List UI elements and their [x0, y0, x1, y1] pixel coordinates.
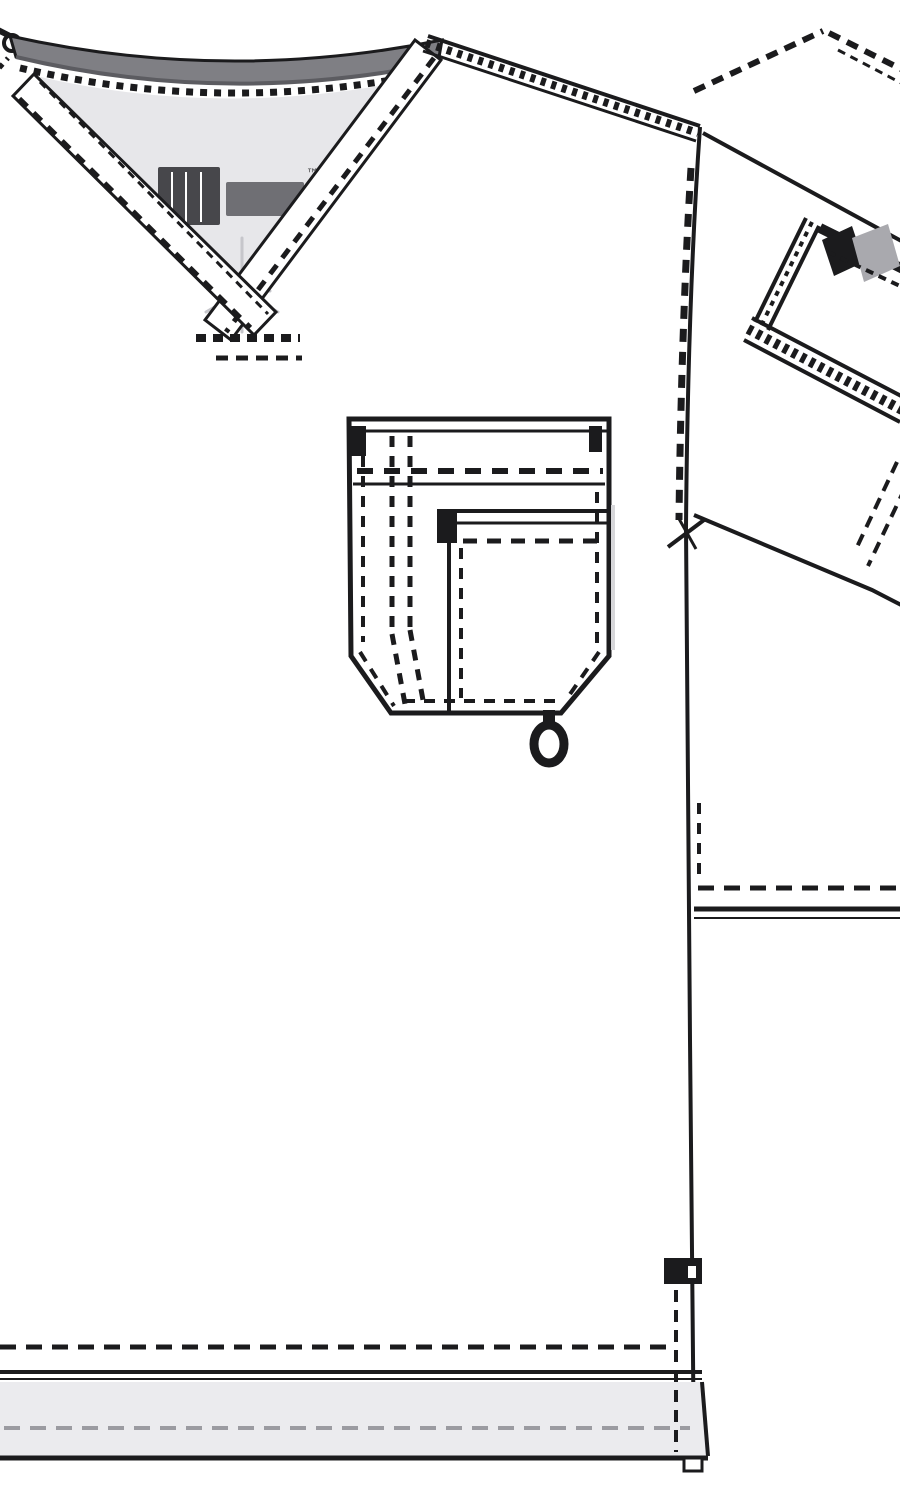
front-body-fill — [0, 36, 700, 1462]
scrub-top-drawing: ™ — [0, 0, 900, 1500]
vent-bartack-notch — [688, 1266, 696, 1278]
back-body-fill — [694, 28, 900, 917]
front-view-garment: ™ — [0, 28, 708, 1471]
pocket-body — [349, 419, 609, 713]
garment-flat-sketch: ™ — [0, 0, 900, 1500]
pocket-bartack-right — [589, 426, 602, 452]
vent-bartack — [664, 1258, 702, 1284]
back-view-garment — [694, 28, 900, 918]
hem-facing-band — [0, 1382, 708, 1456]
vent-hem-tab — [684, 1458, 702, 1471]
